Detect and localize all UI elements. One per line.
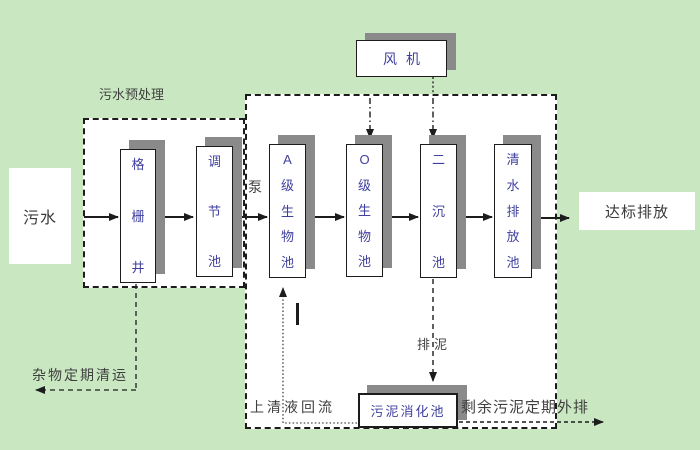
blower-box: 风机 bbox=[356, 40, 447, 77]
process-flow-diagram: 污水 达标排放 风机 格栅井 调节池 A级生物池 O级生物池 二沉池 清水排放池… bbox=[0, 0, 700, 450]
secondary-clarifier-box: 二沉池 bbox=[420, 144, 457, 278]
clear-water-tank-box: 清水排放池 bbox=[494, 144, 532, 278]
clear-water-tank-label: 清水排放池 bbox=[495, 145, 531, 277]
regulating-tank-label: 调节池 bbox=[197, 147, 232, 276]
sludge-drain-label: 排泥 bbox=[417, 338, 451, 353]
supernatant-return-label: 上清液回流 bbox=[250, 399, 335, 415]
discharge-box: 达标排放 bbox=[579, 192, 695, 230]
pump-label: 泵 bbox=[248, 179, 262, 195]
tank-o-label: O级生物池 bbox=[347, 145, 382, 276]
influent-label: 污水 bbox=[23, 204, 57, 228]
tank-a-label: A级生物池 bbox=[270, 145, 305, 277]
pretreatment-region-label: 污水预处理 bbox=[99, 88, 164, 103]
tank-a-box: A级生物池 bbox=[269, 144, 306, 278]
sludge-digester-box: 污泥消化池 bbox=[358, 393, 458, 428]
tank-o-box: O级生物池 bbox=[346, 144, 383, 277]
blower-label: 风机 bbox=[383, 49, 429, 69]
sludge-digester-label: 污泥消化池 bbox=[370, 401, 445, 420]
grid-well-label: 格栅井 bbox=[121, 150, 155, 282]
grid-well-box: 格栅井 bbox=[120, 149, 156, 283]
secondary-clarifier-label: 二沉池 bbox=[421, 145, 456, 277]
regulating-tank-box: 调节池 bbox=[196, 146, 233, 277]
excess-sludge-label: 剩余污泥定期外排 bbox=[461, 399, 589, 416]
debris-removal-label: 杂物定期清运 bbox=[32, 367, 128, 383]
influent-box: 污水 bbox=[9, 168, 71, 264]
discharge-label: 达标排放 bbox=[605, 201, 669, 222]
